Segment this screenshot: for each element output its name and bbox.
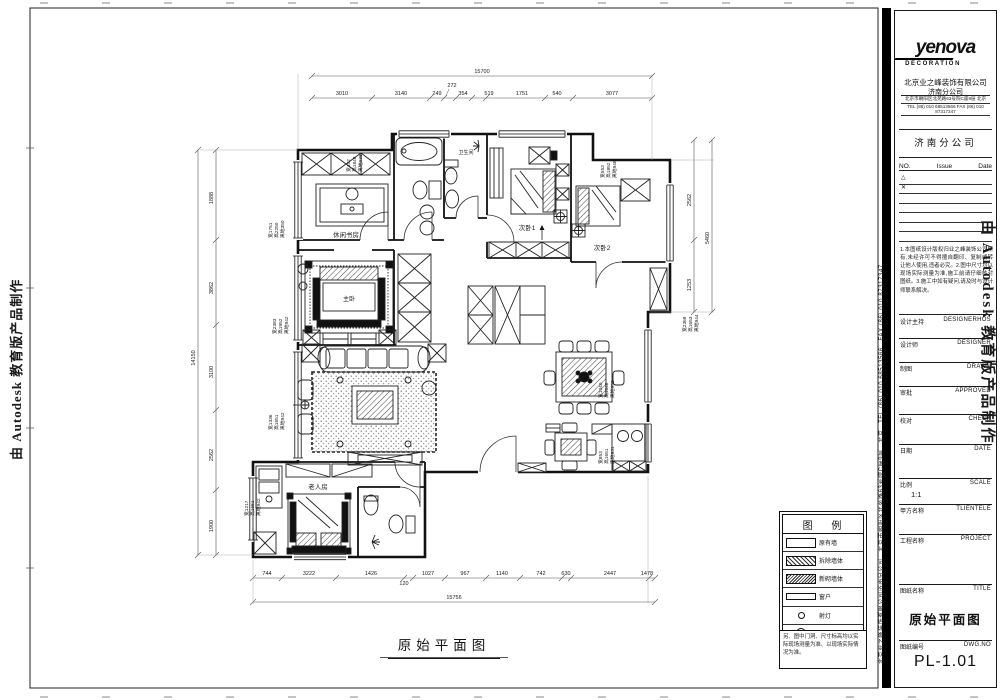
dim-value: 1751: [516, 91, 528, 97]
legend-label: 窗户: [819, 592, 831, 601]
divider: [899, 129, 992, 130]
legend-label: 拆除墙体: [819, 556, 843, 565]
window-note: 宽1336: [267, 414, 274, 430]
dim-value: 1027: [422, 571, 434, 577]
legend-row: 窗户: [783, 588, 863, 606]
dim-value: 3077: [606, 91, 618, 97]
window-note: 高2250: [273, 222, 280, 238]
legend-note: 另、图中门洞、尺寸标高均以实际现场测量为准、以现场实际情况为准。: [779, 630, 867, 669]
dim-value: 15756: [446, 595, 461, 601]
dim-value: 3010: [336, 91, 348, 97]
field-label-cn: 设计师: [900, 340, 918, 349]
dim-value: 1888: [209, 192, 215, 204]
cad-sheet: 休闲书房 主卧 次卧1 次卧2 老人房 卫生间 宽1751高2250离地350 …: [0, 0, 1000, 700]
dim-value: 744: [262, 571, 271, 577]
field-label-cn: 工程名称: [900, 536, 924, 545]
dim-value: 540: [552, 91, 561, 97]
room-label: 卫生间: [458, 149, 473, 156]
room-bedroom2: [576, 179, 667, 310]
window-note: 宽1217: [243, 500, 250, 516]
room-living: [298, 344, 546, 472]
dim-value: 120: [399, 581, 408, 587]
field-label-cn: 图纸名称: [900, 586, 924, 595]
company-phone: TEL (86) 010 68513566 FAX (86) 010 87317…: [901, 104, 990, 116]
wall-demolish-swatch: [783, 556, 819, 566]
dim-value: 2562: [687, 194, 693, 206]
dim-value: 2562: [209, 449, 215, 461]
rev-issue-label: Issue: [937, 163, 953, 170]
window-note: 宽1751: [267, 222, 274, 238]
dim-value: 3222: [303, 571, 315, 577]
dimension-text: 15700 3010 3140 249 272 354 519 1751 540…: [191, 69, 711, 601]
dim-value: 354: [458, 91, 467, 97]
window-note: 高1848: [351, 156, 358, 172]
dim-value: 249: [432, 91, 441, 97]
field-label-en: PROJECT: [961, 536, 991, 542]
dim-value: 272: [447, 83, 456, 89]
company-contact-vertical: 北京业之峰装饰有限公司济南分公司 北京市朝阳区北苑路63号院C座9层 北京 TE…: [876, 264, 885, 664]
window-note: 高1852: [605, 162, 612, 178]
logo-subtitle: DECORATION: [895, 61, 961, 67]
bathroom-1: [396, 138, 442, 235]
storage-cabinets: [398, 254, 545, 344]
dim-value: 1900: [209, 520, 215, 532]
dim-value: 742: [536, 571, 545, 577]
window-swatch: [783, 593, 819, 600]
company-address: 北京市朝阳区北苑路63号院C座9层 北京: [901, 96, 990, 104]
window-note: 高1648: [603, 382, 610, 398]
field-label-cn: 校对: [900, 416, 912, 425]
room-elderly: [254, 464, 415, 554]
field-label-cn: 设计主持: [900, 317, 924, 326]
dim-value: 5460: [705, 232, 711, 244]
legend-row: 拆除墙体: [783, 552, 863, 570]
room-master: [298, 261, 396, 345]
legend-row: 原有墙: [783, 534, 863, 552]
window-note: 宽553: [599, 165, 606, 178]
wall-existing-swatch: [783, 538, 819, 548]
window-note: 宽1040: [597, 382, 604, 398]
spotlight-icon: [783, 612, 819, 619]
room-label: 次卧1: [519, 223, 536, 232]
dim-value: 1140: [496, 571, 508, 577]
room-study: [302, 153, 390, 226]
legend-label: 射灯: [819, 611, 831, 620]
dim-value: 1426: [365, 571, 377, 577]
window-note: 高1651: [603, 448, 610, 464]
door-arcs: [360, 196, 622, 507]
divider: [899, 157, 992, 158]
room-label: 休闲书房: [333, 230, 359, 239]
dim-value: 2447: [604, 571, 616, 577]
rev-no-label: NO.: [899, 163, 911, 170]
field-label-en: DWG.NO: [964, 642, 991, 648]
window-note: 离地938: [357, 154, 364, 172]
field-label-cn: 制图: [900, 364, 912, 373]
legend-label: 原有墙: [819, 538, 837, 547]
field-clientele: 甲方名称 TLIENTELE: [899, 505, 992, 535]
field-label-cn: 图纸编号: [900, 642, 924, 651]
field-project: 工程名称 PROJECT: [899, 535, 992, 585]
dim-value: 15700: [474, 69, 489, 75]
caption-underline: [380, 657, 508, 658]
room-label: 老人房: [308, 482, 328, 491]
dim-value: 3100: [209, 366, 215, 378]
legend-row: 射灯: [783, 607, 863, 625]
window-note: 高1952: [277, 318, 284, 334]
dim-value: 1253: [687, 279, 693, 291]
logo-swoosh: [894, 58, 953, 60]
window-note: 高1651: [273, 414, 280, 430]
interior-walls: [298, 134, 670, 557]
window-note: 离地948: [611, 160, 618, 178]
field-label-en: SCALE: [970, 480, 991, 486]
dim-value: 630: [561, 571, 570, 577]
autodesk-watermark-right: 由 Autodesk 教育版产品制作: [978, 220, 999, 444]
window-note: 离地931: [609, 446, 616, 464]
window-note: 宽2369: [681, 316, 688, 332]
wall-new-swatch: [783, 574, 819, 584]
legend-label: 新砌墙体: [819, 574, 843, 583]
window-note: 离地952: [609, 380, 616, 398]
sheet-title-value: 原始平面图: [895, 609, 996, 628]
window-note: 离地350: [279, 220, 286, 238]
company-logo: yenova: [895, 37, 996, 59]
room-kitchen: [545, 423, 646, 471]
field-label-cn: 审批: [900, 388, 912, 397]
window-note: 高1653: [687, 316, 694, 332]
window-note: 宽853: [597, 451, 604, 464]
dim-value: 14150: [191, 350, 197, 365]
scale-value: 1:1: [911, 490, 996, 499]
field-label-cn: 甲方名称: [900, 506, 924, 515]
autodesk-watermark-left: 由 Autodesk 教育版产品制作: [6, 279, 25, 460]
dim-value: 967: [460, 571, 469, 577]
legend-title: 图 例: [783, 515, 863, 534]
room-label: 主卧: [343, 295, 355, 303]
field-date: 日期 DATE: [899, 445, 992, 479]
room-label: 次卧2: [594, 243, 611, 252]
branch-name: 济南分公司: [895, 135, 996, 149]
dim-value: 3140: [395, 91, 407, 97]
room-dining: [544, 341, 624, 414]
field-label-cn: 日期: [900, 446, 912, 455]
field-label-cn: 比例: [900, 480, 912, 489]
window-note: 离地942: [283, 316, 290, 334]
window-note: 宽2383: [271, 318, 278, 334]
field-label-en: TLIENTELE: [956, 506, 991, 512]
dim-value: 519: [484, 91, 493, 97]
window-note: 高1651: [249, 500, 256, 516]
revision-header: NO. Issue Date: [899, 163, 992, 171]
dim-value: 3862: [209, 282, 215, 294]
dim-value: 1478: [641, 571, 653, 577]
dimension-lines: [195, 73, 715, 605]
field-label-en: TITLE: [973, 586, 991, 592]
rev-date-label: Date: [978, 163, 992, 170]
window-note: 离地942: [279, 412, 286, 430]
window-note: 离地942: [255, 498, 262, 516]
window-note: 宽452: [345, 159, 352, 172]
field-label-en: DATE: [974, 446, 991, 452]
drawing-caption: 原始平面图: [388, 634, 500, 659]
legend-row: 新砌墙体: [783, 570, 863, 588]
window-note: 离地944: [693, 314, 700, 332]
dwg-number-value: PL-1.01: [895, 653, 996, 671]
